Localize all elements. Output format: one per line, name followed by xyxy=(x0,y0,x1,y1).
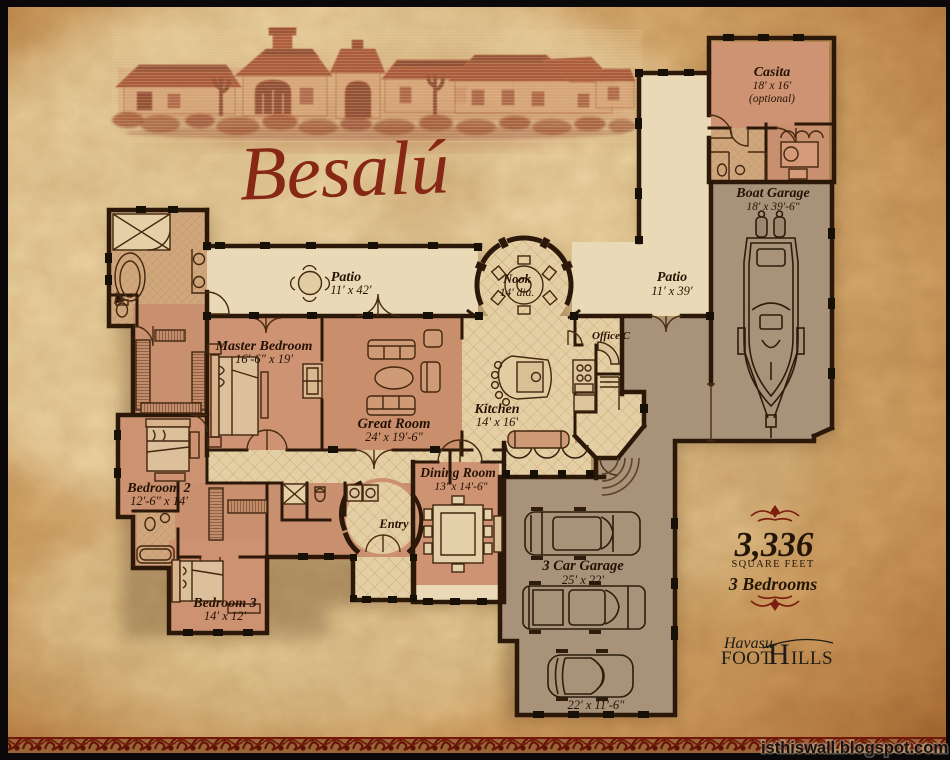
svg-text:14' dia.: 14' dia. xyxy=(500,287,534,299)
svg-text:24' x 19'-6": 24' x 19'-6" xyxy=(365,430,424,444)
svg-text:22' x 11'-6": 22' x 11'-6" xyxy=(568,698,626,712)
svg-text:14' x 16': 14' x 16' xyxy=(476,415,518,429)
svg-text:13' x 14'-6": 13' x 14'-6" xyxy=(434,481,487,493)
svg-text:3 Car Garage: 3 Car Garage xyxy=(541,558,624,574)
svg-text:isthiswall.blogspot.com: isthiswall.blogspot.com xyxy=(761,739,948,757)
svg-text:Boat Garage: Boat Garage xyxy=(735,186,810,201)
svg-text:FOOT: FOOT xyxy=(721,648,773,669)
svg-text:3 Bedrooms: 3 Bedrooms xyxy=(728,574,818,594)
svg-text:Dining Room: Dining Room xyxy=(419,465,495,480)
svg-text:ILLS: ILLS xyxy=(791,648,833,669)
svg-text:Besalú: Besalú xyxy=(238,123,450,216)
svg-text:12'-6" x 14': 12'-6" x 14' xyxy=(130,494,188,508)
svg-text:14' x 12': 14' x 12' xyxy=(204,609,246,623)
svg-text:Office C: Office C xyxy=(592,330,631,342)
svg-text:Entry: Entry xyxy=(378,517,409,531)
svg-text:SQUARE FEET: SQUARE FEET xyxy=(732,559,815,570)
svg-text:11' x 39': 11' x 39' xyxy=(651,284,693,298)
svg-text:25' x 22': 25' x 22' xyxy=(562,573,604,587)
svg-text:Nook: Nook xyxy=(502,272,532,286)
svg-text:(optional): (optional) xyxy=(749,93,795,105)
svg-text:18' x 16': 18' x 16' xyxy=(753,80,792,92)
svg-text:Patio: Patio xyxy=(657,270,687,285)
svg-text:16'-6" x 19': 16'-6" x 19' xyxy=(235,352,293,366)
svg-text:Casita: Casita xyxy=(754,65,791,80)
svg-text:11' x 42': 11' x 42' xyxy=(330,283,372,297)
svg-text:18' x 39'-6": 18' x 39'-6" xyxy=(746,201,799,213)
